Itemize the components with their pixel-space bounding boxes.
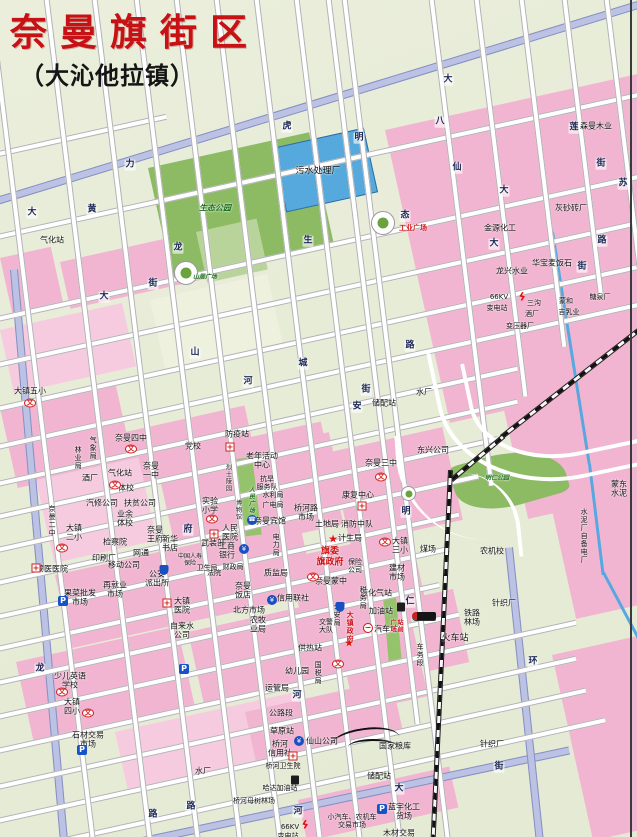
map-label: 府: [182, 525, 193, 536]
map-label: 变电站: [278, 832, 299, 837]
map-label: 铁路 林场: [464, 609, 480, 628]
map-label: 再就业 市场: [103, 581, 127, 600]
map-label: 康复中心: [342, 490, 374, 499]
map-label: 酒厂: [525, 310, 539, 318]
map-label: 保险 公司: [348, 558, 362, 575]
map-label: 国税局: [314, 661, 322, 685]
map-label: 安: [351, 402, 362, 413]
map-label: 明: [353, 133, 364, 144]
map-label: 山: [189, 348, 200, 359]
map-label: 信用联社: [277, 593, 309, 602]
shield-icon: [336, 602, 345, 612]
parking-icon: P: [58, 596, 68, 606]
city-map-canvas: 奈曼旗街区 （大沁他拉镇） 生态公园污水处理厂山居广场工业广场气化站气化站大镇五…: [0, 0, 637, 837]
map-label: 人民 医院: [222, 524, 238, 543]
map-label: 明仁公园: [485, 474, 509, 481]
map-label: 变电站: [487, 304, 508, 312]
map-label: 扶贫公司: [124, 498, 156, 507]
map-label: 河: [291, 691, 302, 702]
map-label: 华宝麦饭石: [532, 258, 572, 267]
map-label: 老年活动 中心: [246, 452, 278, 471]
map-label: 汽修公司: [86, 498, 118, 507]
map-label: 网通: [133, 548, 149, 557]
map-label: 水利局: [263, 491, 284, 499]
bus-icon: −: [363, 623, 373, 633]
map-label: 木材交易: [383, 828, 415, 837]
school-icon: 文: [375, 473, 387, 482]
gas-icon: [397, 603, 405, 612]
map-label: 新华 书店: [162, 535, 178, 554]
map-label: 灰砂砖厂: [555, 203, 587, 212]
map-label: 草原站: [270, 726, 294, 735]
school-icon: 文: [307, 573, 319, 582]
map-label: 生: [302, 236, 313, 247]
map-label: 河: [292, 807, 303, 818]
map-label: 水泥厂自备电厂: [580, 508, 588, 564]
map-label: 三沟: [527, 299, 541, 307]
map-label: 林业局: [74, 446, 82, 470]
map-label: 质监局: [264, 568, 288, 577]
map-label: 农机校: [480, 546, 504, 555]
school-icon: 文: [24, 399, 36, 408]
map-label: 奈曼三中: [365, 458, 397, 467]
map-label: 大镇 四小: [64, 698, 80, 717]
map-label: 储配站: [372, 398, 396, 407]
map-label: 仁: [404, 597, 415, 608]
map-label: 法院: [207, 569, 221, 577]
map-label: 广电局: [263, 501, 284, 509]
map-label: 环: [527, 657, 538, 668]
map-label: 北方市场: [233, 605, 265, 614]
roundabout-industry-square: [371, 211, 395, 235]
map-label: 污水处理厂: [295, 167, 340, 178]
map-label: 路: [147, 810, 158, 821]
map-label: 电力局: [272, 533, 280, 557]
map-label: 大镇五小: [14, 386, 46, 395]
map-label: 奈曼二中: [48, 505, 56, 537]
map-label: 吉乳业: [559, 308, 580, 316]
school-icon: 文: [82, 709, 94, 718]
map-label: 路: [185, 802, 196, 813]
map-label: 防疫站: [225, 429, 249, 438]
map-label: 街: [576, 262, 587, 273]
map-label: 运管局: [265, 683, 289, 692]
map-label: 龙兴水业: [496, 266, 528, 275]
map-label: 大: [488, 239, 499, 250]
map-label: 烈士陵园: [224, 464, 231, 492]
shield-icon: [160, 565, 169, 575]
cross-icon: +: [163, 599, 172, 608]
map-label: 奈曼 饭店: [235, 582, 251, 601]
map-label: 建材 市场: [389, 564, 405, 583]
map-label: 农牧 业局: [250, 616, 266, 635]
map-label: 公路段: [269, 708, 293, 717]
map-label: 森曼木业: [580, 121, 612, 130]
map-label: 河: [242, 377, 253, 388]
gas-icon: [291, 776, 299, 785]
bank-icon: ¥: [267, 595, 277, 605]
bank-icon: ¥: [239, 544, 249, 554]
map-label: 路: [404, 341, 415, 352]
map-label: 大镇 医院: [174, 597, 190, 616]
school-icon: 文: [56, 544, 68, 553]
map-label: 哈达加油站: [263, 784, 298, 792]
map-label: 财政局: [223, 563, 244, 571]
bank-icon: ¥: [294, 736, 304, 746]
map-label: 土地局: [315, 519, 339, 528]
map-label: 火车站: [441, 634, 468, 645]
map-label: 水厂: [195, 766, 211, 775]
map-label: 变压器厂: [506, 322, 534, 330]
map-label: 街: [360, 385, 371, 396]
map-label: 大镇 二小: [66, 524, 82, 543]
star-icon: ★: [344, 638, 354, 649]
map-label: 大镇 三小: [392, 537, 408, 556]
cross-icon: +: [358, 502, 367, 511]
map-label: 大: [26, 208, 37, 219]
map-label: 蒙东水泥: [610, 480, 628, 499]
map-label: 储配站: [367, 771, 391, 780]
city-block: [552, 636, 637, 837]
map-label: 煤场: [420, 544, 436, 553]
map-label: 龙: [172, 243, 183, 254]
parking-icon: P: [179, 664, 189, 674]
map-label: 力: [124, 160, 135, 171]
map-label: 糖泉厂: [590, 293, 611, 301]
map-label: 车务段: [416, 643, 424, 667]
map-label: 黄: [86, 205, 97, 216]
map-label: 气化站: [108, 468, 132, 477]
map-label: 66KV: [490, 293, 508, 301]
map-label: 路: [596, 236, 607, 247]
map-label: 城: [297, 359, 308, 370]
map-label: 奈曼 一中: [143, 462, 159, 481]
map-label: 奈曼宾馆: [254, 516, 286, 525]
map-label: 生态公园: [199, 203, 231, 212]
map-label: 自来水 公司: [170, 622, 194, 641]
map-label: 交警 大队: [319, 618, 333, 635]
ring-road-east: [505, 547, 544, 837]
map-label: 奈曼蒙中: [315, 576, 347, 585]
cross-icon: +: [32, 564, 41, 573]
map-label: 税务局: [359, 586, 367, 610]
map-label: 蓝宇化工 货场: [388, 803, 420, 822]
map-label: 街: [595, 159, 606, 170]
map-label: 国家粮库: [379, 741, 411, 750]
map-label: 仙山公司: [306, 736, 338, 745]
map-label: 果菜批发 市场: [64, 589, 96, 608]
parking-icon: P: [77, 745, 87, 755]
map-label: 66KV: [281, 823, 299, 831]
map-label: 大: [442, 75, 453, 86]
map-label: 桥河母树林场: [233, 797, 275, 805]
map-label: 工商 银行: [219, 542, 235, 561]
map-label: 东兴公司: [417, 445, 449, 454]
map-label: 针织厂: [480, 739, 504, 748]
map-label: 业余 体校: [117, 510, 133, 529]
map-label: 蒙医医院: [36, 564, 68, 573]
map-label: 明: [400, 507, 411, 518]
map-label: 街: [493, 762, 504, 773]
map-subtitle: （大沁他拉镇）: [10, 56, 260, 91]
school-icon: 文: [379, 538, 391, 547]
map-label: 针织厂: [492, 598, 516, 607]
map-label: 实验 小学: [202, 497, 218, 516]
map-label: 消防中队: [341, 519, 373, 528]
map-label: 幼儿园: [285, 666, 309, 675]
map-label: 态: [399, 211, 410, 222]
map-label: 供热站: [298, 643, 322, 652]
cross-icon: +: [289, 752, 298, 761]
map-label: 大: [498, 186, 509, 197]
map-label: 气化站: [40, 235, 64, 244]
map-label: 站前 广场: [389, 619, 403, 633]
map-label: 加油站: [369, 606, 393, 615]
map-label: 检察院: [103, 537, 127, 546]
map-label: 党校: [185, 441, 201, 450]
map-label: 桥河卫生院: [266, 762, 301, 770]
map-label: 计生局: [338, 533, 362, 542]
school-icon: 文: [109, 481, 121, 490]
map-label: 龙: [34, 664, 45, 675]
map-label: 八: [434, 117, 445, 128]
title-block: 奈曼旗街区 （大沁他拉镇）: [10, 2, 260, 91]
star-icon: ★: [328, 534, 338, 545]
map-label: 莲: [568, 123, 579, 134]
school-icon: 文: [56, 688, 68, 697]
map-frame-line: [630, 0, 632, 837]
map-label: 奈曼四中: [115, 433, 147, 442]
map-label: 仙: [451, 163, 462, 174]
map-label: 金源化工: [484, 223, 516, 232]
school-icon: 文: [206, 515, 218, 524]
map-label: 抗旱 服务队: [257, 475, 278, 492]
map-label: 移动公司: [108, 560, 140, 569]
phone-icon: ☎: [247, 515, 257, 525]
train-icon: [412, 612, 436, 620]
map-label: 博物馆: [234, 500, 241, 521]
map-title: 奈曼旗街区: [10, 2, 260, 56]
map-label: 蒙和: [559, 297, 573, 305]
school-icon: 文: [332, 660, 344, 669]
school-icon: 文: [125, 445, 137, 454]
map-label: 气象局: [89, 436, 97, 460]
map-label: 人民广场: [247, 486, 254, 514]
map-label: 水厂: [416, 387, 432, 396]
cross-icon: +: [210, 530, 219, 539]
map-label: 虎: [281, 122, 292, 133]
map-label: 苏: [617, 179, 628, 190]
cross-icon: +: [226, 443, 235, 452]
map-label: 旗委 旗政府: [316, 546, 343, 567]
map-label: 大: [98, 292, 109, 303]
roundabout-small: [401, 486, 416, 501]
map-label: 大: [393, 784, 404, 795]
map-label: 山居广场: [193, 273, 217, 280]
map-label: 奈曼 王府: [147, 526, 163, 545]
map-label: 工业广场: [399, 224, 427, 232]
map-label: 街: [147, 279, 158, 290]
map-label: 小汽车、农机车 交易市场: [328, 813, 377, 830]
map-label: 酒厂: [82, 473, 98, 482]
parking-icon: P: [377, 804, 387, 814]
